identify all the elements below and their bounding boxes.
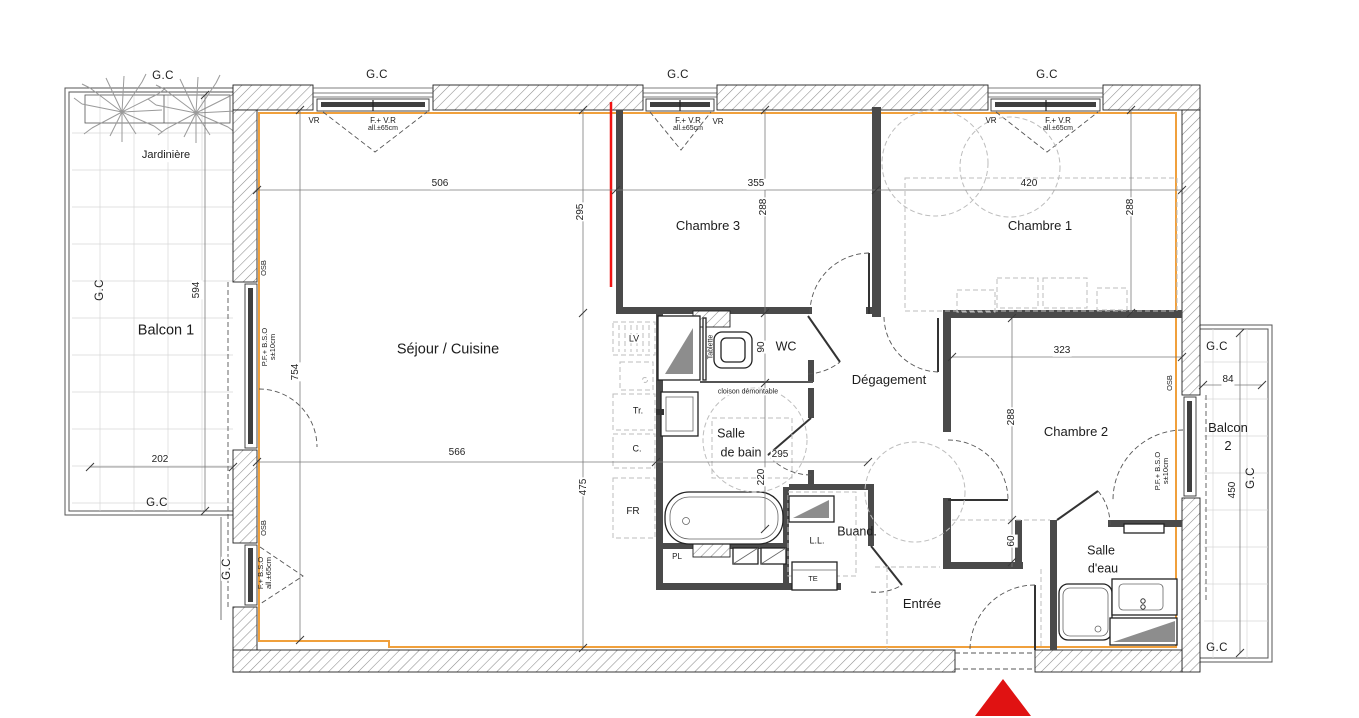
window-label-fvr: F.+ V.R all.±65cm [368,117,398,133]
fixture-label-tableau-electrique: TE [808,575,818,583]
dim-balcon2-height: 450 [1228,481,1239,500]
window-label-line: all.±65cm [265,557,273,589]
room-label-entree: Entrée [903,597,941,611]
vr-label: VR [712,118,723,126]
floorplan-page: G.C G.C G.C G.C G.C G.C G.C G.C G.C G.C … [0,0,1359,718]
fixture-label-tri: Tr. [633,406,643,415]
fixture-label-frigo: FR [626,507,639,518]
window-label-fvr: F.+ V.R all.±65cm [673,117,703,133]
room-label-salle-deau: Salle [1087,544,1115,557]
fixture-label-lave-vaisselle: LV [628,334,640,343]
window-label-fvr: F.+ V.R all.±65cm [1043,117,1073,133]
gc-label: G.C [1245,467,1257,489]
room-label-chambre3: Chambre 3 [676,219,740,233]
window-label-line: all.±65cm [673,126,703,133]
osb-label: OSB [1166,374,1174,392]
gc-label: G.C [1036,69,1058,81]
dim-chambre3-width: 355 [747,179,766,190]
room-label-balcon1: Balcon 1 [138,323,194,338]
gc-label: G.C [1206,341,1228,353]
insulation-line [259,113,1176,647]
dim-chambre3-height: 288 [759,198,770,217]
dim-sejour-width: 506 [431,179,450,190]
window-label-pf-bso-right: P.F.+ B.S.O s±10cm [1154,452,1170,490]
gc-label: G.C [221,557,233,581]
room-label-buanderie: Buand. [837,525,877,538]
window-label-line: all.±65cm [368,126,398,133]
dim-sdb-width: 295 [771,450,790,461]
fixture-label-lave-linge: L.L. [808,536,825,545]
window-label-pf-bso-left: P.F.+ B.S.O s±10cm [261,328,277,366]
dim-chambre2-height: 288 [1007,408,1018,427]
osb-label: OSB [260,259,268,277]
room-label-degagement: Dégagement [852,373,926,387]
room-label-balcon2: 2 [1224,439,1231,453]
dim-chambre1-width: 420 [1020,179,1039,190]
gc-label: G.C [146,497,168,509]
room-label-chambre2: Chambre 2 [1044,425,1108,439]
room-label-salle-de-bain: de bain [719,446,762,459]
dim-sdb-height: 220 [757,468,768,487]
gc-label: G.C [152,70,174,82]
dim-chambre1-height: 288 [1126,198,1137,217]
fixture-label-cellier: C. [633,444,642,453]
entrance-marker-triangle [975,679,1031,716]
window-label-f-bso-left: F.+ B.S.O all.±65cm [257,557,273,589]
dim-balcon1-width: 202 [151,455,170,466]
gc-label: G.C [1206,642,1228,654]
room-label-wc: WC [776,340,797,353]
room-label-chambre1: Chambre 1 [1008,219,1072,233]
gc-label: G.C [366,69,388,81]
room-label-salle-de-bain: Salle [716,427,746,440]
room-label-jardiniere: Jardinière [141,150,191,162]
dim-sejour-height: 754 [291,363,302,382]
fixture-label-tablette: Tablette [707,335,714,360]
vr-label: VR [985,117,996,125]
window-label-line: s±10cm [269,328,277,366]
cloison-demontable-label: cloison démontable [717,388,779,395]
dim-chambre2-width: 323 [1053,346,1072,357]
dim-strip-295: 295 [576,203,587,222]
window-label-line: F.+ V.R [1043,117,1073,125]
room-label-balcon2: Balcon [1208,421,1248,435]
window-label-line: all.±65cm [1043,126,1073,133]
dim-sejour-width2: 566 [448,448,467,459]
window-label-line: F.+ V.R [368,117,398,125]
fixture-label-placard: PL [672,553,682,561]
vr-label: VR [308,117,319,125]
dim-wc-height: 90 [757,340,768,353]
window-label-line: F.+ V.R [673,117,703,125]
gc-label: G.C [667,69,689,81]
room-label-salle-deau: d'eau [1088,562,1118,575]
window-label-line: s±10cm [1162,452,1170,490]
dim-balcon2-width: 84 [1221,375,1234,386]
osb-label: OSB [260,519,268,537]
dim-balcon1-height: 594 [192,281,203,300]
room-label-sejour: Séjour / Cuisine [397,342,499,357]
gc-label: G.C [94,279,106,301]
dim-sejour-height2: 475 [579,478,590,497]
floorplan-drawing [0,0,1359,718]
dim-chambre2-closet: 60 [1007,534,1018,547]
